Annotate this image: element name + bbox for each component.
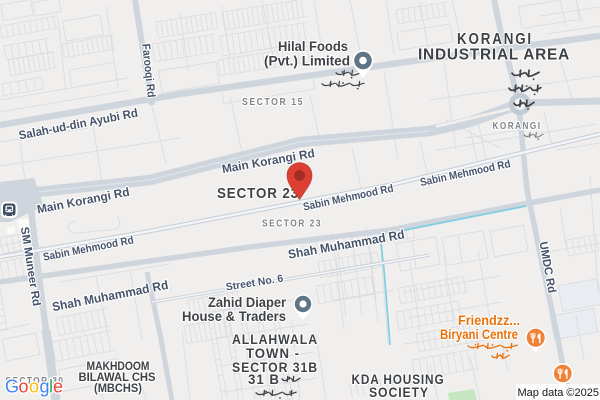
svg-text:Hilal Foods: Hilal Foods	[278, 39, 348, 54]
svg-text:INDUSTRIAL AREA: INDUSTRIAL AREA	[418, 47, 570, 64]
svg-text:KORANGI: KORANGI	[457, 31, 533, 48]
svg-text:Map data ©2025: Map data ©2025	[518, 387, 600, 399]
svg-text:ALLAHWALA: ALLAHWALA	[232, 332, 318, 347]
svg-text:House & Traders: House & Traders	[182, 309, 286, 324]
svg-text:o: o	[19, 377, 29, 397]
svg-text:31 B: 31 B	[248, 372, 280, 387]
svg-text:(MBCHS): (MBCHS)	[94, 383, 142, 395]
svg-text:KORANGI: KORANGI	[493, 121, 542, 132]
svg-text:Zahid Diaper: Zahid Diaper	[208, 295, 287, 310]
svg-text:G: G	[5, 377, 19, 397]
svg-text:(Pvt.) Limited: (Pvt.) Limited	[264, 54, 350, 69]
svg-text:g: g	[40, 377, 50, 397]
svg-text:SECTOR 23: SECTOR 23	[217, 185, 299, 202]
svg-text:Friendzz...: Friendzz...	[458, 313, 520, 328]
svg-text:SECTOR 15: SECTOR 15	[242, 97, 304, 108]
svg-text:TOWN -: TOWN -	[246, 346, 300, 361]
svg-text:SECTOR 23: SECTOR 23	[262, 219, 322, 230]
svg-text:SOCIETY: SOCIETY	[369, 384, 429, 400]
svg-text:o: o	[29, 377, 39, 397]
svg-text:e: e	[53, 377, 63, 397]
svg-text:Biryani Centre: Biryani Centre	[440, 327, 518, 342]
